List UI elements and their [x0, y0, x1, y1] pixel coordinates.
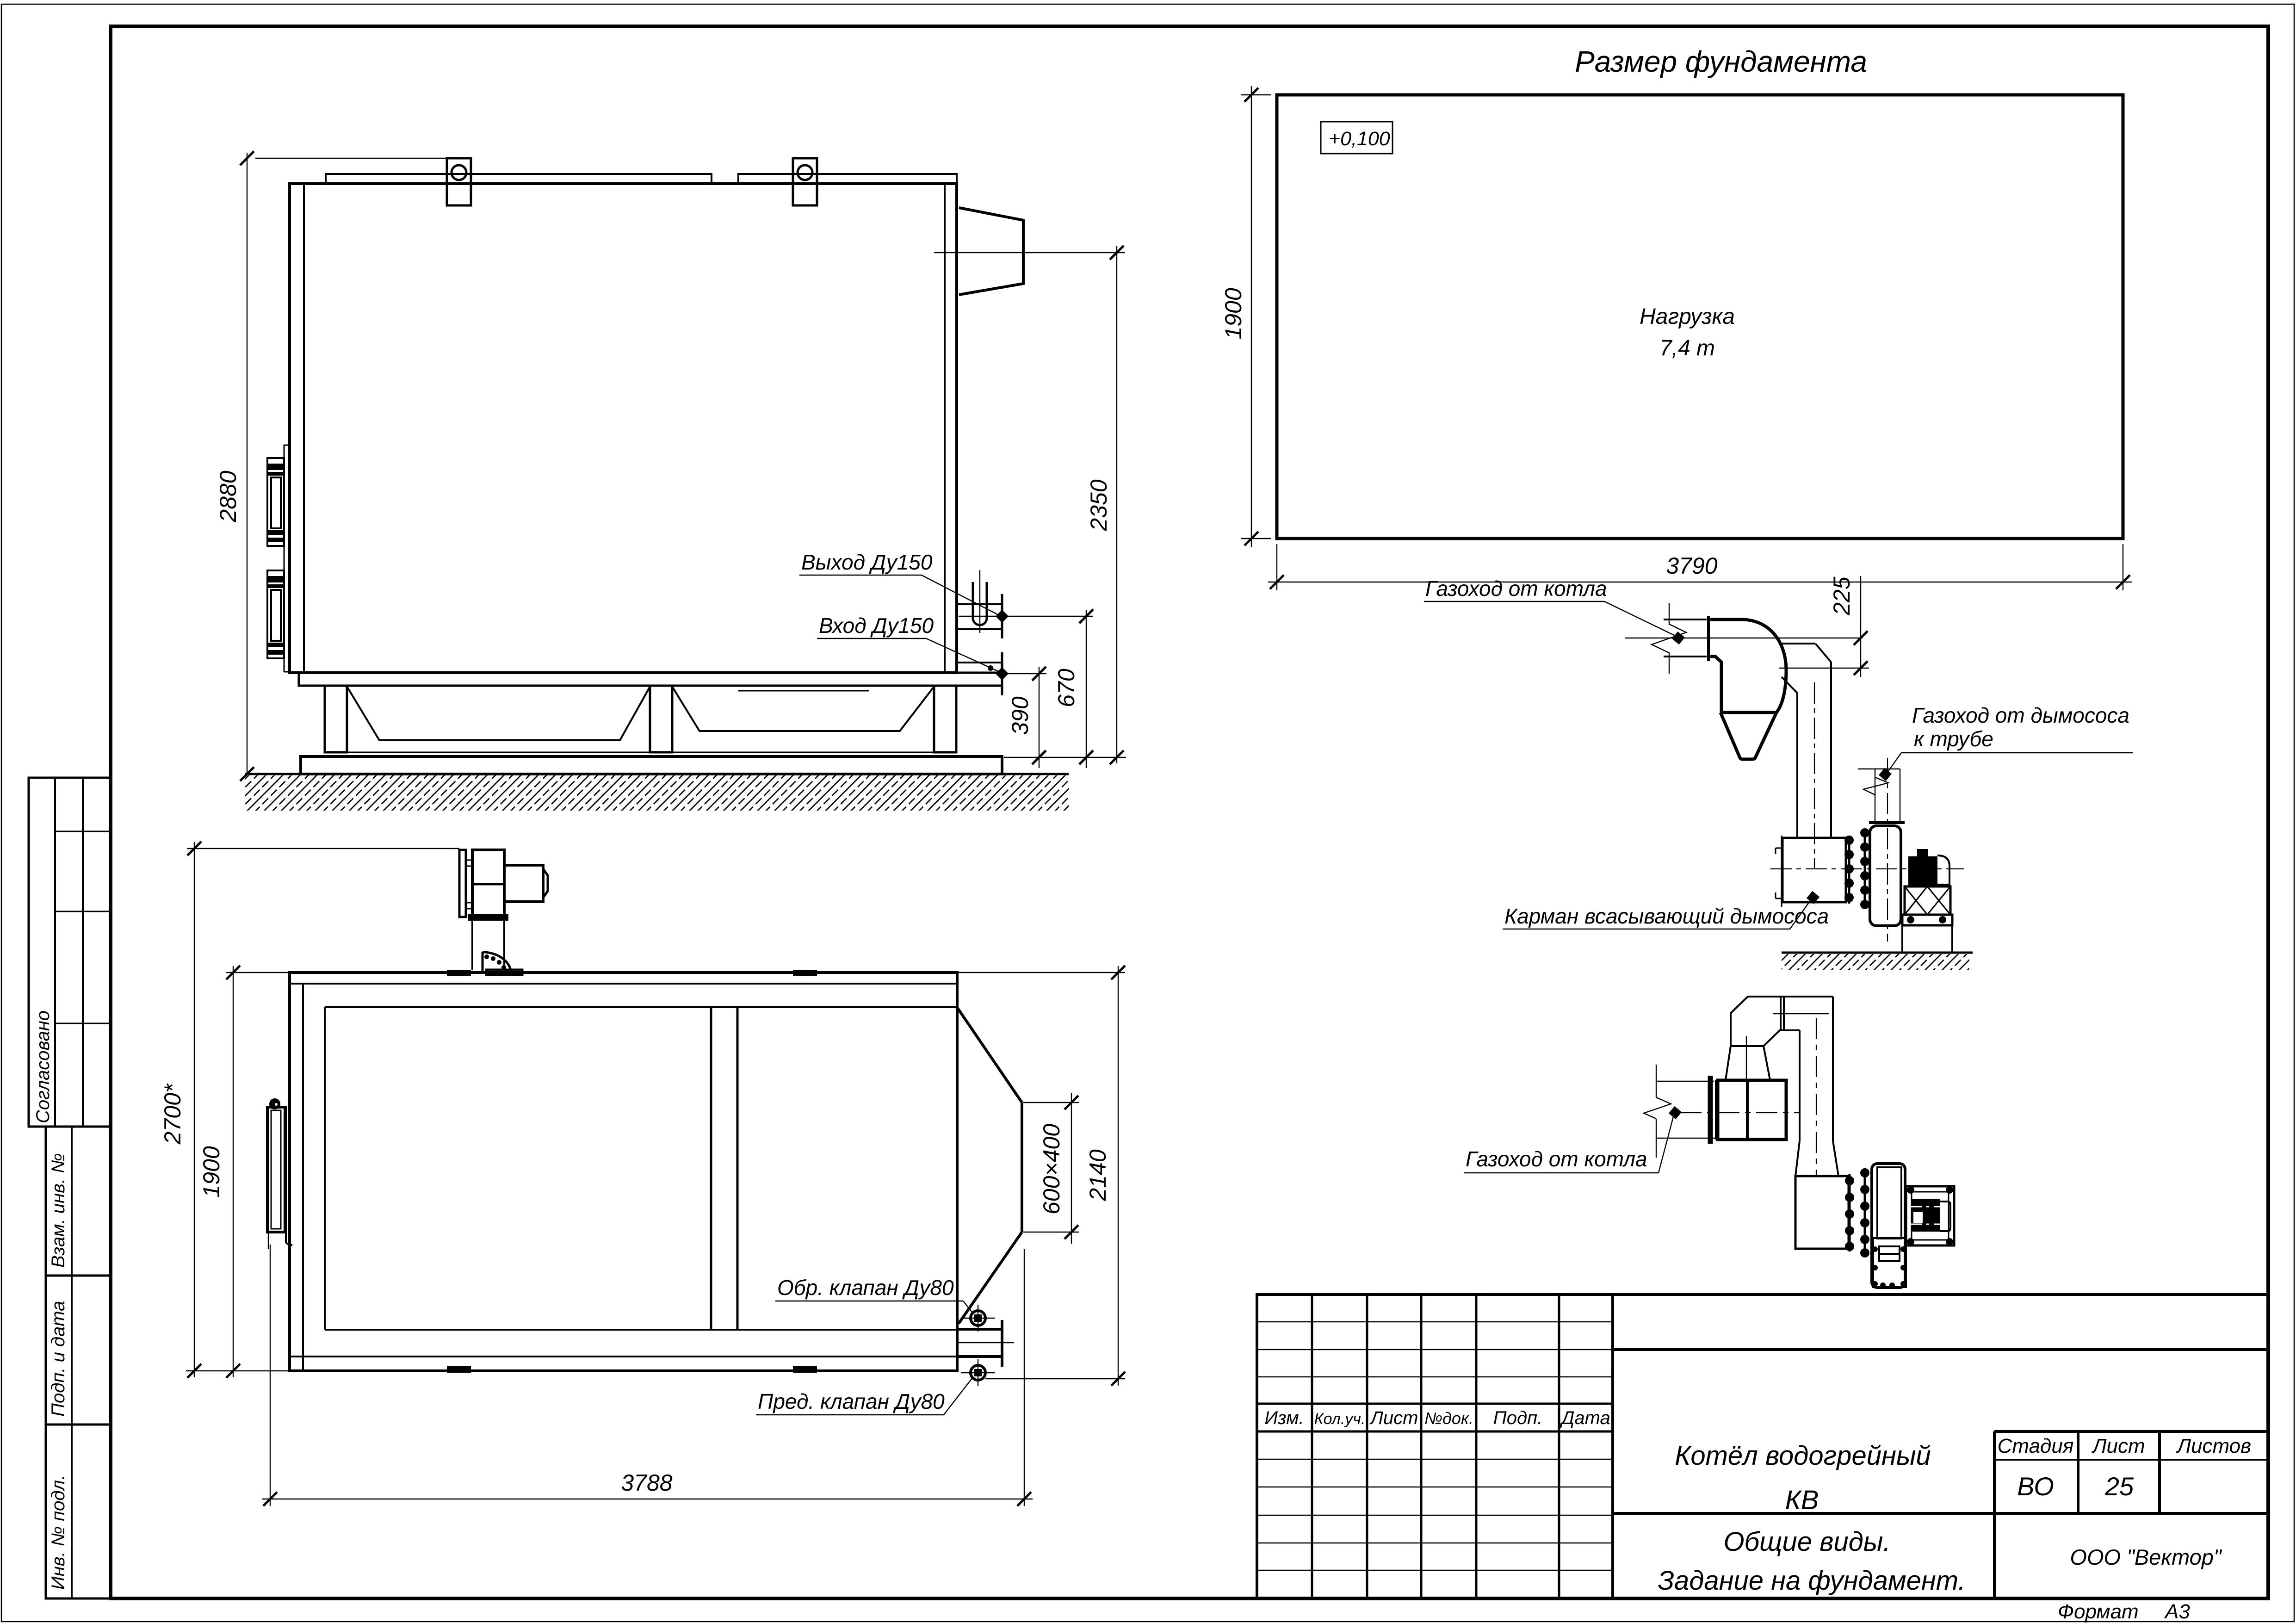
svg-text:3788: 3788 — [621, 1470, 672, 1496]
svg-text:ВО: ВО — [2017, 1472, 2054, 1501]
svg-text:ООО "Вектор": ООО "Вектор" — [2070, 1545, 2222, 1569]
svg-text:Котёл водогрейный: Котёл водогрейный — [1675, 1441, 1931, 1471]
svg-text:Размер фундамента: Размер фундамента — [1575, 45, 1867, 78]
svg-text:Согласовано: Согласовано — [33, 1010, 53, 1123]
svg-text:+0,100: +0,100 — [1329, 128, 1390, 150]
svg-text:Лист: Лист — [2091, 1435, 2145, 1457]
svg-text:2700*: 2700* — [160, 1083, 186, 1145]
svg-text:Газоход от котла: Газоход от котла — [1466, 1147, 1647, 1171]
svg-text:7,4 т: 7,4 т — [1659, 336, 1715, 360]
svg-text:2350: 2350 — [1086, 479, 1112, 531]
svg-text:390: 390 — [1007, 696, 1033, 735]
svg-text:Пред. клапан Ду80: Пред. клапан Ду80 — [758, 1389, 945, 1413]
svg-text:Подп.: Подп. — [1493, 1408, 1542, 1428]
svg-text:600×400: 600×400 — [1039, 1124, 1064, 1214]
svg-text:Взам. инв. №: Взам. инв. № — [48, 1153, 68, 1268]
svg-text:225: 225 — [1829, 576, 1855, 616]
svg-text:3790: 3790 — [1666, 553, 1717, 579]
svg-text:Изм.: Изм. — [1264, 1408, 1304, 1428]
svg-text:2880: 2880 — [215, 471, 241, 522]
svg-text:№док.: №док. — [1424, 1409, 1473, 1428]
svg-text:Лист: Лист — [1369, 1408, 1418, 1428]
svg-text:КВ: КВ — [1785, 1485, 1819, 1515]
svg-text:Газоход от дымососа: Газоход от дымососа — [1912, 703, 2129, 727]
svg-text:Общие виды.: Общие виды. — [1723, 1527, 1890, 1557]
svg-text:к трубе: к трубе — [1914, 727, 1993, 751]
svg-text:Инв. № подл.: Инв. № подл. — [48, 1475, 68, 1590]
svg-text:Выход Ду150: Выход Ду150 — [801, 550, 933, 574]
svg-text:1900: 1900 — [1220, 288, 1246, 339]
svg-text:Стадия: Стадия — [1998, 1435, 2074, 1457]
svg-text:Вход Ду150: Вход Ду150 — [819, 613, 934, 638]
svg-text:А3: А3 — [2164, 1600, 2190, 1623]
svg-text:Газоход от котла: Газоход от котла — [1425, 576, 1607, 601]
svg-text:1900: 1900 — [198, 1146, 224, 1197]
svg-text:Задание на фундамент.: Задание на фундамент. — [1658, 1566, 1965, 1596]
svg-text:Дата: Дата — [1560, 1408, 1610, 1428]
svg-text:Нагрузка: Нагрузка — [1640, 304, 1735, 329]
svg-text:Обр. клапан Ду80: Обр. клапан Ду80 — [777, 1276, 954, 1300]
svg-text:670: 670 — [1053, 669, 1079, 707]
svg-text:Кол.уч.: Кол.уч. — [1314, 1410, 1366, 1428]
svg-text:25: 25 — [2104, 1472, 2134, 1501]
svg-text:2140: 2140 — [1085, 1149, 1111, 1201]
svg-text:Листов: Листов — [2176, 1435, 2251, 1457]
svg-text:Подп. и дата: Подп. и дата — [48, 1301, 68, 1417]
svg-text:Формат: Формат — [2058, 1600, 2139, 1623]
svg-text:Карман всасывающий дымососа: Карман всасывающий дымососа — [1504, 904, 1829, 928]
